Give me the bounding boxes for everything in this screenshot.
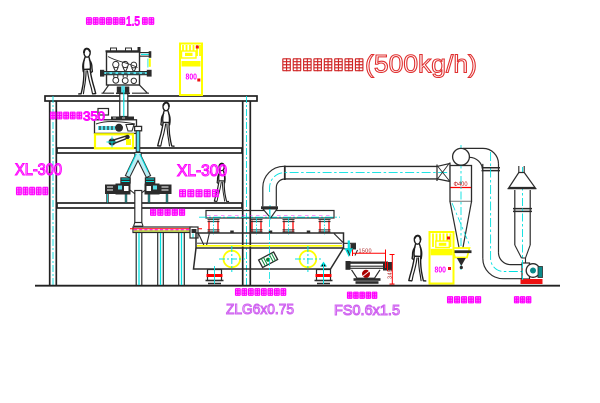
svg-text:350: 350 xyxy=(83,110,105,124)
svg-text:800: 800 xyxy=(435,265,447,275)
svg-text:1500: 1500 xyxy=(359,249,372,255)
svg-text:FS0.6x1.5: FS0.6x1.5 xyxy=(334,302,400,319)
svg-text:(500kg/h): (500kg/h) xyxy=(365,51,477,79)
svg-text:345: 345 xyxy=(388,269,394,279)
svg-text:XL-300: XL-300 xyxy=(15,161,62,179)
svg-text:800: 800 xyxy=(186,72,198,82)
svg-text:1.5: 1.5 xyxy=(126,15,140,29)
svg-text:ZLG6x0.75: ZLG6x0.75 xyxy=(226,301,294,318)
svg-text:XL-300: XL-300 xyxy=(177,162,227,180)
